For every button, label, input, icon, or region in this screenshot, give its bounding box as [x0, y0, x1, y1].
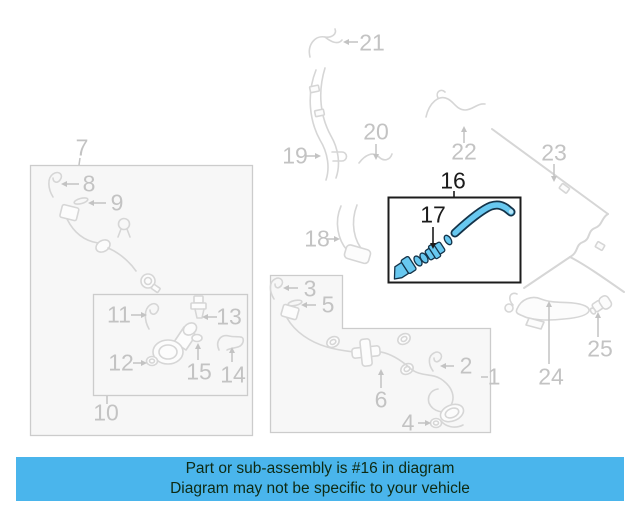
callout-arrow-20	[373, 144, 379, 160]
part-label-25: 25	[587, 338, 613, 361]
part-label-23: 23	[541, 142, 567, 165]
part-label-19: 19	[282, 145, 308, 168]
vehicle-note-banner: Part or sub-assembly is #16 in diagram D…	[16, 457, 624, 501]
banner-line-2: Diagram may not be specific to your vehi…	[170, 479, 470, 499]
part-label-3: 3	[304, 278, 317, 301]
part-label-10: 10	[93, 402, 119, 425]
part-label-16-highlighted: 16	[440, 170, 466, 193]
part-label-20: 20	[363, 121, 389, 144]
part-label-9: 9	[111, 192, 124, 215]
diagram-art	[0, 0, 640, 512]
part-label-5: 5	[322, 294, 335, 317]
part-label-8: 8	[83, 173, 96, 196]
part-label-4: 4	[402, 412, 415, 435]
part-label-6: 6	[375, 389, 388, 412]
callout-arrow-19	[306, 153, 321, 159]
part-label-14: 14	[220, 364, 246, 387]
hose-part-18	[337, 205, 371, 264]
part-label-18: 18	[304, 228, 330, 251]
part-label-22: 22	[451, 141, 477, 164]
banner-line-1: Part or sub-assembly is #16 in diagram	[186, 459, 455, 479]
hose-end-cap	[509, 209, 513, 213]
fitting-part-25	[589, 294, 613, 315]
ring-part-15	[192, 335, 202, 342]
bracket-part-24	[505, 293, 589, 329]
parts-diagram: 1 2 3 4 5 6 7 8 9 10 11 12 13 14 15 16 1…	[0, 0, 640, 512]
part-label-2: 2	[460, 355, 473, 378]
callout-arrow-25	[595, 312, 601, 337]
part-label-13: 13	[216, 306, 242, 329]
hose-part-19	[309, 68, 346, 180]
part-label-21: 21	[359, 32, 385, 55]
hose-part-21	[309, 29, 342, 57]
part-label-11: 11	[107, 304, 131, 327]
ring-part-4	[431, 419, 442, 428]
callout-arrow-21	[343, 39, 358, 45]
part-label-7: 7	[76, 137, 89, 160]
part-label-1: 1	[488, 366, 501, 389]
hose-part-22	[426, 90, 485, 117]
part-label-24: 24	[538, 366, 564, 389]
part-label-12: 12	[108, 352, 134, 375]
part-label-17-highlighted: 17	[420, 204, 446, 227]
ring-part-12	[147, 357, 158, 366]
part-label-15: 15	[186, 361, 212, 384]
